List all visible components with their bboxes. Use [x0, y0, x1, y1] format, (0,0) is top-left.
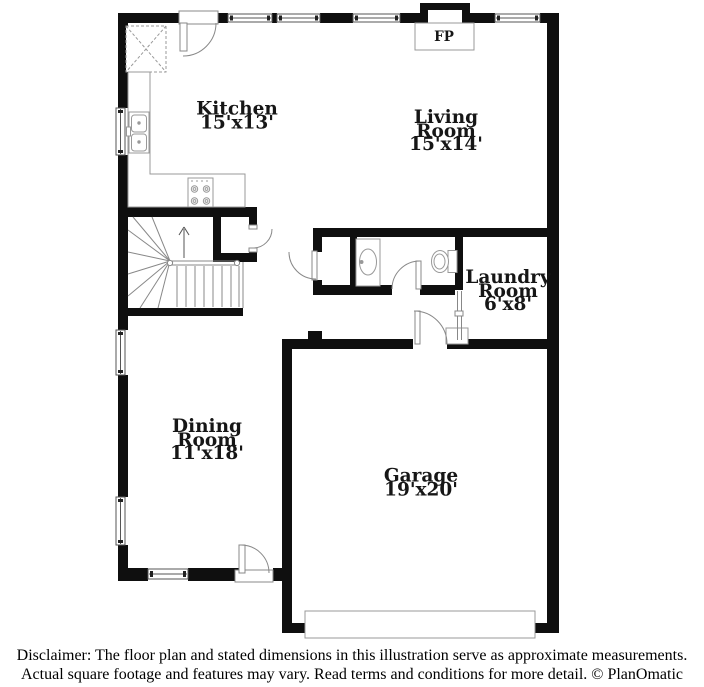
disclaimer: Disclaimer: The floor plan and stated di…: [0, 646, 704, 684]
fireplace-label: FP: [434, 29, 454, 45]
wall: [286, 339, 413, 349]
toilet: [432, 251, 458, 273]
window: [495, 14, 540, 22]
fireplace-niche: [428, 10, 462, 24]
stairs-up-arrow: [179, 227, 189, 258]
disclaimer-line-2: Actual square footage and features may v…: [0, 665, 704, 684]
wall: [313, 228, 547, 237]
wall: [188, 568, 240, 581]
wall: [313, 237, 322, 252]
window: [228, 14, 272, 22]
disclaimer-line-1: Disclaimer: The floor plan and stated di…: [0, 646, 704, 665]
front-door: [235, 545, 273, 582]
kitchen-label: Kitchen 15'x13': [196, 103, 278, 130]
wall: [547, 13, 559, 633]
wall: [400, 13, 420, 23]
kitchen-back-door: [179, 11, 218, 56]
laundry-room-label: Laundry Room 6'x8': [465, 271, 550, 312]
room-dims: 15'x14': [409, 138, 483, 152]
wall: [118, 308, 243, 316]
living-room-label: Living Room 15'x14': [409, 111, 483, 152]
banister: [167, 260, 239, 265]
wall: [118, 207, 257, 217]
wall: [118, 568, 148, 581]
window: [353, 14, 400, 22]
floor-plan: Kitchen 15'x13' Living Room 15'x14' Laun…: [0, 0, 704, 687]
floor-plan-drawing: [0, 0, 704, 687]
bath-closet-door: [289, 251, 317, 280]
stove: [188, 178, 213, 207]
garage-label: Garage 19'x20': [384, 470, 458, 497]
wall: [282, 339, 292, 633]
staircase: [128, 217, 243, 308]
wall: [118, 375, 128, 497]
dining-room-label: Dining Room 11'x18': [170, 420, 244, 461]
garage-entry-door: [414, 311, 447, 344]
wall: [470, 13, 495, 23]
window: [277, 14, 320, 22]
window: [148, 569, 188, 579]
closet-wall: [249, 252, 257, 262]
hall-closet-door: [249, 225, 272, 252]
bathroom-door: [392, 261, 421, 289]
wall: [272, 13, 277, 23]
room-dims: 19'x20': [384, 483, 458, 497]
window: [116, 108, 125, 155]
kitchen-sink: [127, 112, 150, 153]
window: [116, 497, 125, 545]
room-dims: 15'x13': [196, 116, 278, 130]
pantry-box: [126, 26, 166, 72]
closet-wall: [249, 217, 257, 225]
wall-stub: [308, 331, 322, 339]
vanity-sink: [356, 239, 380, 286]
wall: [118, 155, 128, 330]
window: [116, 330, 125, 375]
wall: [320, 13, 353, 23]
wall: [420, 285, 455, 295]
bathroom-fixtures: [356, 239, 457, 286]
room-dims: 11'x18': [170, 447, 244, 461]
walls: [118, 3, 559, 633]
garage-door: [305, 611, 535, 638]
